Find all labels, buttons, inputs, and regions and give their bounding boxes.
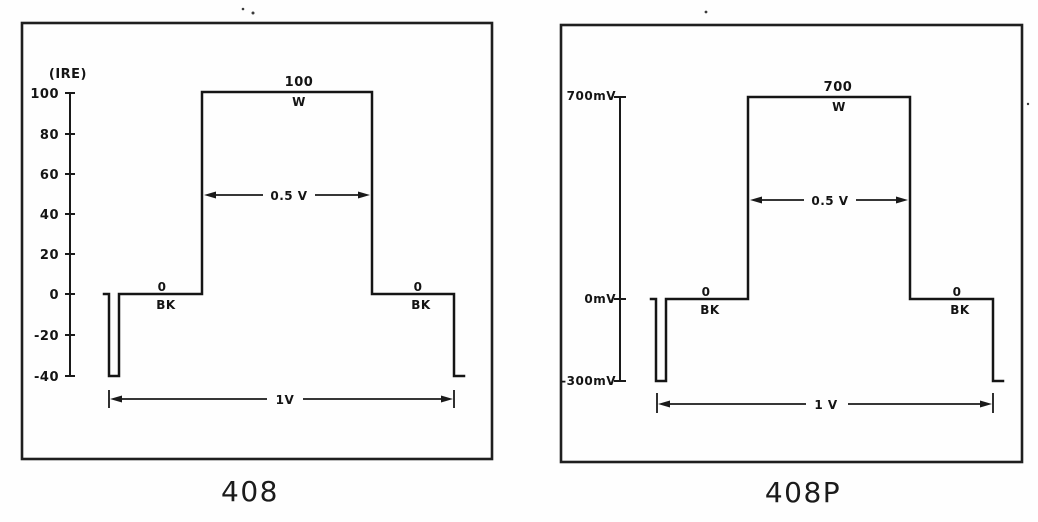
line-period-dimension: 1 V [657, 393, 993, 413]
black-left-value: 0 [702, 285, 711, 299]
panel-caption: 408 [221, 475, 279, 508]
black-right-value: 0 [414, 280, 423, 294]
axis-tick-label: 700mV [567, 89, 617, 103]
panel-408P: 700mV 0mV -300mV 700 W 0 BK 0 BK 0.5 V 1… [561, 25, 1022, 509]
pulse-width-label: 0.5 V [270, 189, 307, 203]
line-period-dimension: 1V [109, 390, 454, 408]
pulse-width-dimension: 0.5 V [204, 189, 370, 203]
black-right-mark: BK [950, 303, 970, 317]
axis-tick-label: -20 [34, 329, 59, 344]
black-left-value: 0 [158, 280, 167, 294]
arrowhead-right-icon [896, 197, 908, 204]
white-level-value: 700 [824, 80, 853, 95]
axis-tick-label: -40 [34, 370, 59, 385]
white-level-value: 100 [285, 75, 314, 90]
axis-tick-label: 80 [40, 128, 59, 143]
arrowhead-right-icon [358, 192, 370, 199]
arrowhead-right-icon [441, 396, 453, 403]
black-left-mark: BK [156, 298, 176, 312]
scan-speck [1027, 103, 1029, 105]
pulse-width-label: 0.5 V [811, 194, 848, 208]
axis-tick-label: 60 [40, 168, 59, 183]
waveform-trace [104, 92, 464, 376]
panel-408: (IRE) 100 80 60 40 20 0 -20 -40 100 W 0 … [22, 23, 492, 508]
arrowhead-left-icon [110, 396, 122, 403]
waveform-figure: (IRE) 100 80 60 40 20 0 -20 -40 100 W 0 … [0, 0, 1038, 522]
axis-tick-label: 0mV [584, 292, 616, 306]
white-level-mark: W [832, 100, 846, 114]
black-left-mark: BK [700, 303, 720, 317]
axis-tick-label: 100 [30, 87, 59, 102]
figure-canvas: (IRE) 100 80 60 40 20 0 -20 -40 100 W 0 … [0, 0, 1038, 522]
line-period-label: 1 V [814, 398, 838, 412]
line-period-label: 1V [276, 393, 295, 407]
black-right-mark: BK [411, 298, 431, 312]
black-right-value: 0 [953, 285, 962, 299]
scan-speck [705, 11, 708, 14]
arrowhead-right-icon [980, 401, 992, 408]
axis-tick-label: 40 [40, 208, 59, 223]
waveform-trace [651, 97, 1003, 381]
panel-border [561, 25, 1022, 462]
arrowhead-left-icon [658, 401, 670, 408]
scan-speck [242, 8, 245, 11]
panel-border [22, 23, 492, 459]
axis-tick-label: -300mV [561, 374, 616, 388]
panel-caption: 408P [765, 476, 841, 509]
axis-unit-label: (IRE) [49, 67, 87, 82]
white-level-mark: W [292, 95, 306, 109]
axis-tick-label: 0 [49, 288, 59, 303]
pulse-width-dimension: 0.5 V [750, 194, 908, 208]
axis-tick-label: 20 [40, 248, 59, 263]
scan-speck [252, 12, 255, 15]
